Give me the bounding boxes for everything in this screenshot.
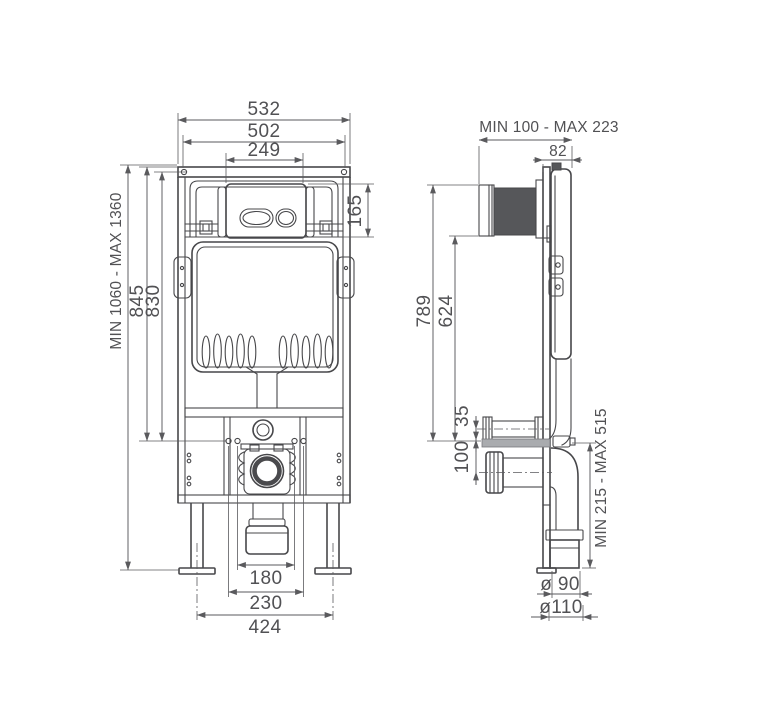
dim-height-789: 789 [414, 295, 435, 328]
dim-frame-depth: 82 [549, 143, 567, 160]
front-view: 532 502 249 165 MIN 1060 - MAX 1360 845 [108, 99, 374, 638]
dim-outlet-range: MIN 215 - MAX 515 [593, 408, 610, 548]
dim-pipe-offset: 35 [452, 405, 473, 427]
outlet-pipe [479, 452, 552, 493]
dim-frame-width: 532 [248, 99, 281, 120]
flush-plate-assembly [185, 181, 343, 238]
dim-dia-110: ø110 [539, 597, 583, 618]
dim-dia-90: ø 90 [540, 574, 580, 595]
waste-outlet-section [187, 417, 341, 495]
dim-plate-height: 165 [345, 195, 366, 228]
support-shelf [482, 439, 550, 447]
cistern-profile [547, 163, 575, 447]
side-view: MIN 100 - MAX 223 82 789 624 35 100 [414, 119, 619, 621]
dim-total-height: MIN 1060 - MAX 1360 [108, 192, 125, 349]
front-frame [174, 167, 354, 574]
drain-elbow [546, 448, 583, 568]
dim-inner-width: 502 [248, 121, 281, 142]
cistern-frame-drawing: 532 502 249 165 MIN 1060 - MAX 1360 845 [0, 0, 757, 726]
flush-sleeve [479, 180, 543, 238]
dim-outlet-height: 100 [452, 441, 473, 474]
technical-drawing: 532 502 249 165 MIN 1060 - MAX 1360 845 [0, 0, 757, 726]
dim-plate-width: 249 [248, 140, 281, 161]
cistern-tank [192, 242, 338, 408]
dim-feet-span: 424 [249, 617, 282, 638]
dim-height-624: 624 [436, 295, 457, 328]
inlet-pipe [477, 417, 550, 447]
tank-ribs [202, 334, 333, 368]
outlet-bend-front [246, 503, 288, 554]
dim-height-830: 830 [143, 285, 164, 318]
dim-fixing-width: 230 [250, 593, 283, 614]
dim-depth-range: MIN 100 - MAX 223 [479, 119, 619, 136]
dim-outlet-width: 180 [250, 568, 283, 589]
